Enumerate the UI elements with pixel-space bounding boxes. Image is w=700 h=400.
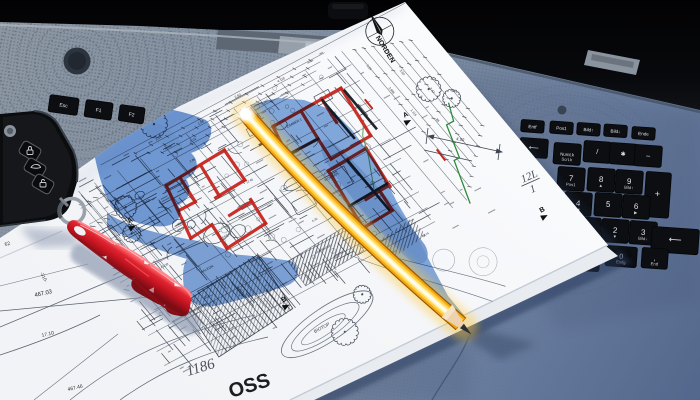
svg-text:Bild↓: Bild↓ bbox=[638, 236, 647, 242]
svg-text:F2: F2 bbox=[128, 112, 135, 119]
svg-text:–: – bbox=[646, 153, 650, 160]
svg-text:Entf: Entf bbox=[650, 261, 659, 267]
svg-text:Entf: Entf bbox=[528, 124, 537, 130]
svg-text:Pos1: Pos1 bbox=[556, 125, 567, 131]
svg-text:⟵: ⟵ bbox=[668, 234, 682, 245]
svg-text:Bild↓: Bild↓ bbox=[610, 128, 620, 134]
svg-text:Bild↑: Bild↑ bbox=[624, 185, 633, 191]
svg-text:▲: ▲ bbox=[598, 183, 602, 188]
svg-text:Pos1: Pos1 bbox=[566, 182, 577, 188]
svg-text:+: + bbox=[654, 189, 660, 199]
svg-text:F1: F1 bbox=[95, 107, 102, 114]
svg-text:▼: ▼ bbox=[612, 234, 616, 239]
svg-text:Bild↑: Bild↑ bbox=[583, 127, 593, 133]
svg-text:ScrLk: ScrLk bbox=[561, 157, 573, 163]
svg-text:Ende: Ende bbox=[638, 131, 649, 137]
svg-text:Esc: Esc bbox=[59, 102, 69, 109]
svg-text:✱: ✱ bbox=[620, 151, 626, 158]
